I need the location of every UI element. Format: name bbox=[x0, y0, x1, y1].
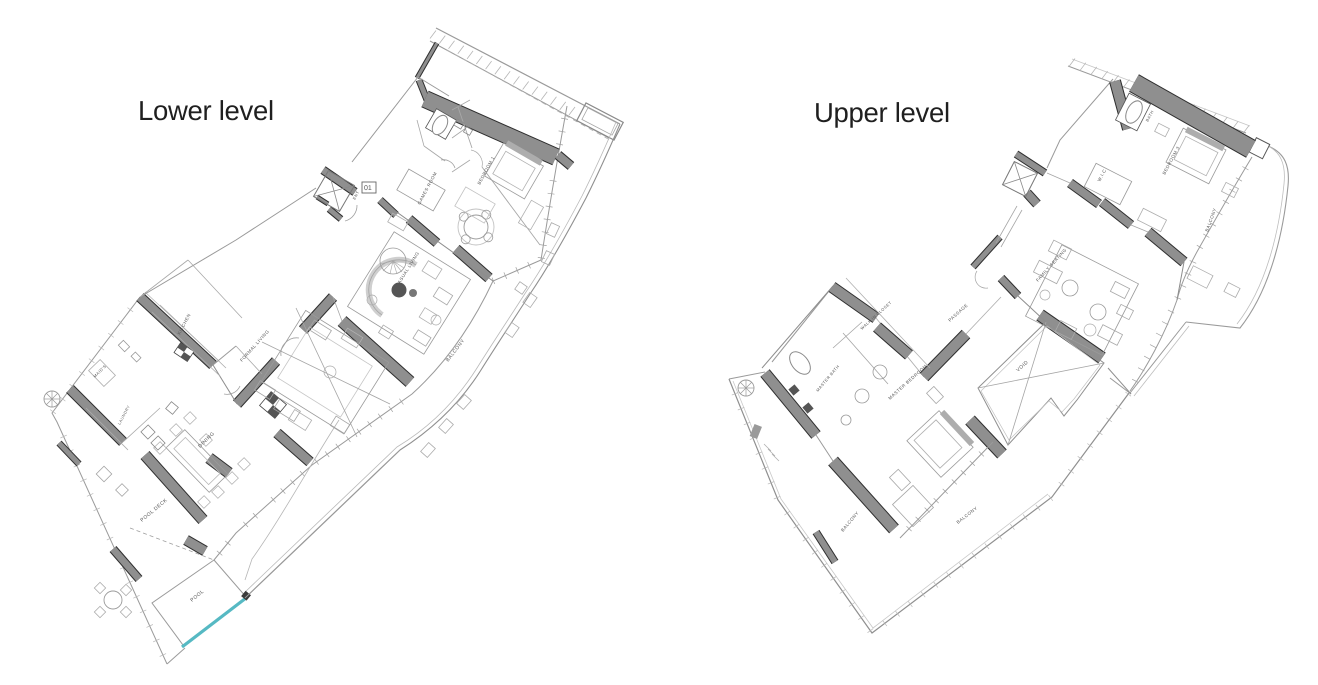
svg-text:Upper level: Upper level bbox=[814, 97, 950, 128]
svg-text:01: 01 bbox=[364, 185, 372, 192]
svg-text:Lower level: Lower level bbox=[138, 95, 274, 126]
